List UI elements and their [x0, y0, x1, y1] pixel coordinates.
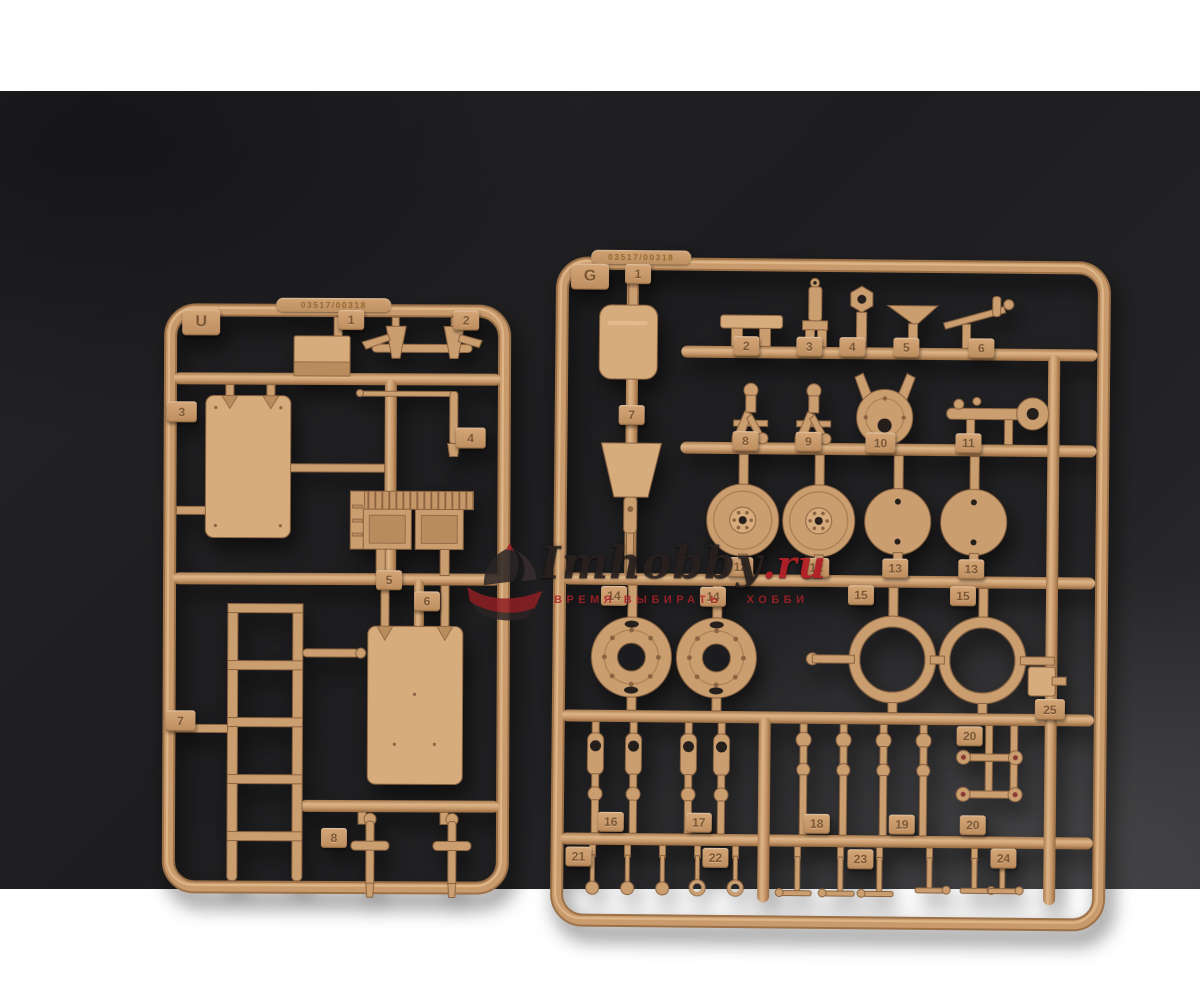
part-u4-rod	[356, 390, 460, 457]
part-number-tag: 24	[990, 849, 1016, 869]
part-number-tag: 20	[960, 815, 986, 835]
part-number-tag: 5	[893, 338, 919, 358]
part-number-tag: 15	[848, 585, 874, 605]
part-number-tag: 3	[796, 337, 822, 357]
sprue-letter-tag-u: U	[182, 309, 220, 335]
page: { "photo": { "background_color": "#20202…	[0, 0, 1200, 982]
part-number-tag: 7	[619, 405, 645, 425]
part-number-tag: 11	[955, 433, 981, 453]
part-g25-block	[1028, 667, 1066, 696]
part-number-tag: 22	[702, 848, 728, 868]
part-number-tag: 14	[601, 586, 627, 606]
part-number-tag: 23	[847, 849, 873, 869]
part-g15-rings	[806, 587, 1055, 714]
part-g21-pins	[586, 845, 669, 895]
photo-background: 03517/00318 U 1 2 3 4 5 6 7 8	[0, 91, 1200, 889]
part-u5-grille	[350, 491, 473, 576]
part-number-tag: 16	[598, 812, 624, 832]
part-number-tag: 12	[803, 558, 829, 578]
sprue-u: 03517/00318 U 1 2 3 4 5 6 7 8	[162, 303, 512, 895]
part-number-tag: 4	[456, 428, 486, 449]
part-number-tag: 3	[167, 401, 197, 422]
part-number-tag: 7	[165, 710, 195, 731]
part-number-tag: 6	[414, 591, 440, 611]
part-number-tag: 13	[958, 559, 984, 579]
part-number-tag: 25	[1035, 699, 1065, 720]
mold-code-u: 03517/00318	[276, 298, 391, 313]
part-number-tag: 1	[625, 264, 651, 284]
part-number-tag: 10	[865, 432, 895, 453]
mold-code-g: 03517/00318	[591, 250, 691, 265]
part-number-tag: 2	[453, 311, 479, 331]
part-number-tag: 12	[727, 557, 753, 577]
part-number-tag: 2	[733, 336, 759, 356]
part-number-tag: 13	[882, 558, 908, 578]
part-g23-pins	[775, 846, 893, 897]
part-number-tag: 19	[889, 815, 915, 835]
part-g7-funnel	[600, 443, 661, 574]
part-number-tag: 9	[795, 432, 821, 452]
part-number-tag: 5	[376, 570, 402, 590]
part-number-tag: 8	[732, 431, 758, 451]
sprue-u-plastic	[162, 303, 512, 895]
sprue-g: 03517/00318 G 1 2 3 4 5 6 7 8 9 10 11 12…	[550, 256, 1111, 931]
part-number-tag: 15	[950, 586, 976, 606]
part-number-tag: 6	[968, 338, 994, 358]
part-number-tag: 18	[804, 814, 830, 834]
part-number-tag: 1	[338, 310, 364, 330]
sprue-letter-tag-g: G	[571, 263, 609, 289]
part-number-tag: 4	[839, 337, 865, 357]
sprue-g-plastic	[550, 256, 1111, 931]
part-number-tag: 20	[957, 726, 983, 746]
part-number-tag: 14	[700, 587, 726, 607]
part-number-tag: 8	[321, 828, 347, 848]
part-number-tag: 17	[686, 813, 712, 833]
part-number-tag: 21	[565, 846, 591, 866]
